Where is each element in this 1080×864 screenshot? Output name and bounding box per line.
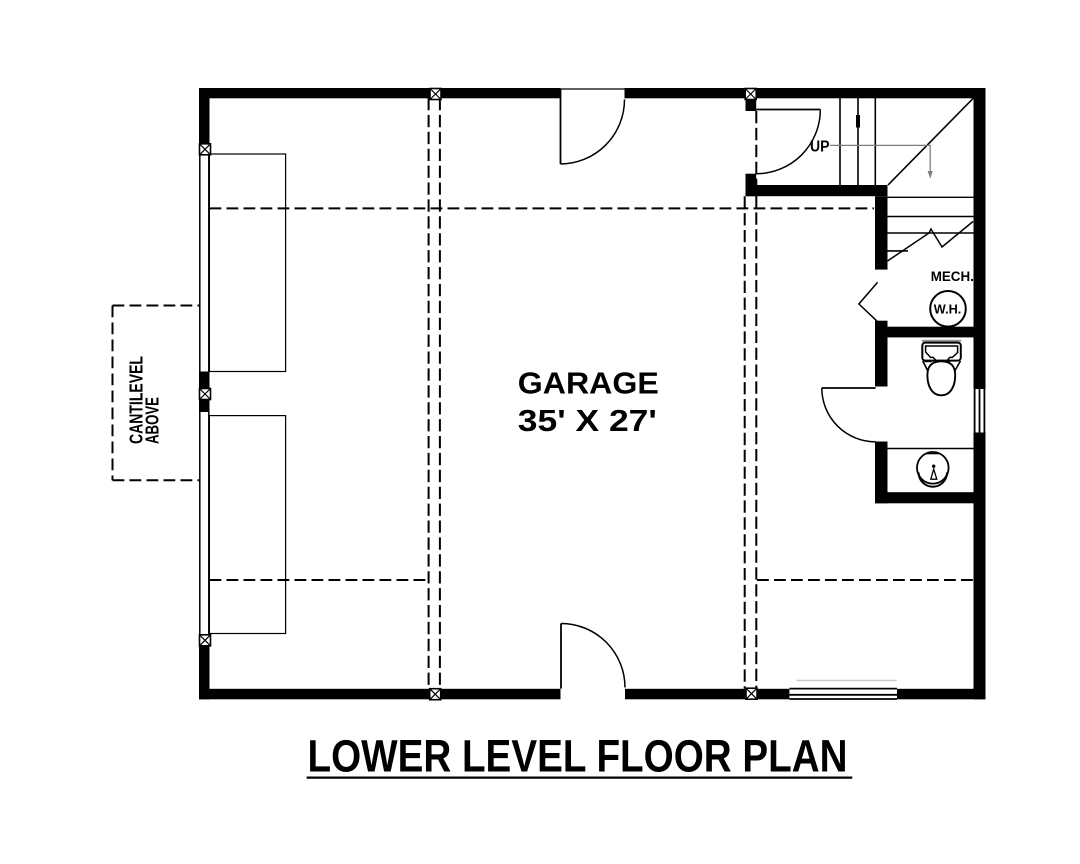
svg-text:GARAGE: GARAGE — [518, 365, 659, 400]
svg-text:MECH.: MECH. — [931, 269, 974, 284]
svg-text:W.H.: W.H. — [934, 301, 962, 316]
svg-text:LOWER LEVEL FLOOR PLAN: LOWER LEVEL FLOOR PLAN — [308, 730, 848, 781]
svg-text:35' X 27': 35' X 27' — [518, 403, 657, 438]
svg-text:UP: UP — [810, 138, 830, 155]
svg-text:ABOVE: ABOVE — [141, 397, 162, 444]
